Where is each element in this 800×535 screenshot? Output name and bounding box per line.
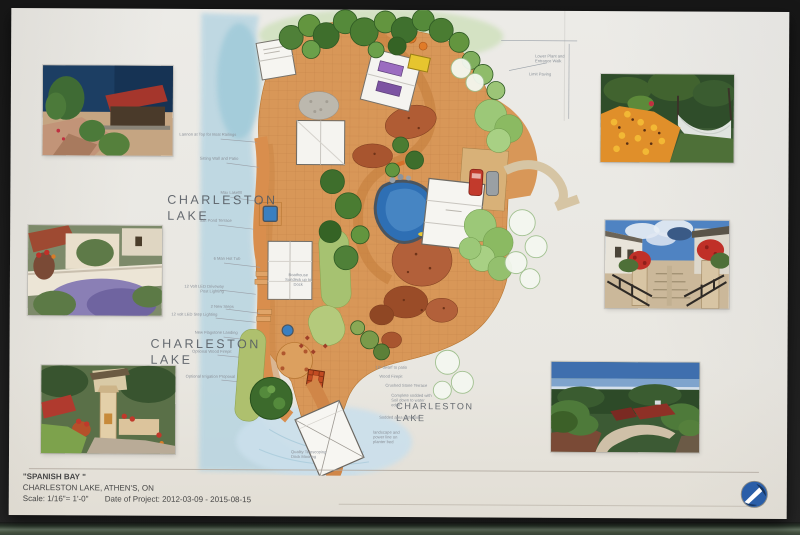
flagstone-patio — [299, 91, 339, 119]
boathouse-roof — [268, 241, 312, 299]
scale-label: Scale: 1/16"= 1'-0" — [23, 493, 89, 504]
plan-annotation: 12 volt LED Step Lighting — [172, 313, 218, 318]
design-firm-logo — [740, 480, 769, 509]
plan-annotation: Boathouse Sundeck up to Dock — [282, 273, 315, 287]
plan-annotation: landscape and power line on planter bed — [373, 431, 410, 445]
plan-annotation: 2 New Steps — [211, 305, 234, 310]
title-block-rule-lower — [339, 504, 757, 507]
plan-annotation: Sodded area with Soil — [379, 416, 419, 421]
plan-annotation: Quality Telescoping Dock Mooring — [291, 450, 329, 460]
plan-annotation: Max Lakefill — [221, 191, 243, 196]
site-plan-poster: CHARLESTON LAKE CHARLESTON LAKE CHARLEST… — [9, 8, 790, 519]
plan-annotation: Lannon at Top for Boat Railings — [180, 133, 237, 138]
shelf-edge — [0, 522, 800, 535]
plan-annotation: New Flagstone Landing — [195, 331, 238, 336]
plan-annotation: 18" dwarf to patio — [375, 366, 407, 371]
project-name: "SPANISH BAY " — [23, 471, 86, 482]
photo-stair-flowers — [605, 220, 729, 309]
project-location: CHARLESTON LAKE, ATHEN'S, ON — [23, 482, 154, 494]
plan-annotation: Optional Irrigation Proposal — [186, 375, 235, 380]
plan-annotation: Sitting Wall and Patio — [200, 157, 239, 162]
project-date-label: Date of Project: 2012-03-09 - 2015-08-15 — [105, 493, 251, 505]
round-spa — [282, 325, 293, 336]
plan-annotation: Limit Paving — [529, 73, 551, 78]
plan-annotation: Lower Plant and Entrance Walk — [535, 55, 566, 65]
plan-annotation: Crushed Stone Terrace — [385, 384, 427, 389]
plan-annotation: 12 Volt LED Driveway Post Lighting — [176, 285, 224, 295]
plan-annotation: Complete sodded with Soil down to water … — [391, 394, 432, 408]
specimen-tree — [250, 377, 292, 419]
photo-garden-pillars — [41, 365, 175, 454]
plan-annotation: Salt Pond Terrace — [200, 219, 232, 224]
framed-poster-photo: CHARLESTON LAKE CHARLESTON LAKE CHARLEST… — [0, 0, 800, 535]
plan-annotation: 6 Man Hot Tub — [213, 257, 240, 262]
site-plan-drawing — [159, 9, 581, 477]
plan-annotation: Optional Wood Firepit — [192, 350, 231, 355]
photo-lakeside-boathouse — [43, 65, 173, 156]
photo-flowers-hammock — [601, 74, 734, 163]
photo-forest-walkway — [551, 362, 699, 453]
photo-lavender-courtyard — [28, 225, 162, 316]
gable-roof-building — [297, 120, 345, 164]
plan-annotation: Wood Firepit — [379, 375, 402, 380]
